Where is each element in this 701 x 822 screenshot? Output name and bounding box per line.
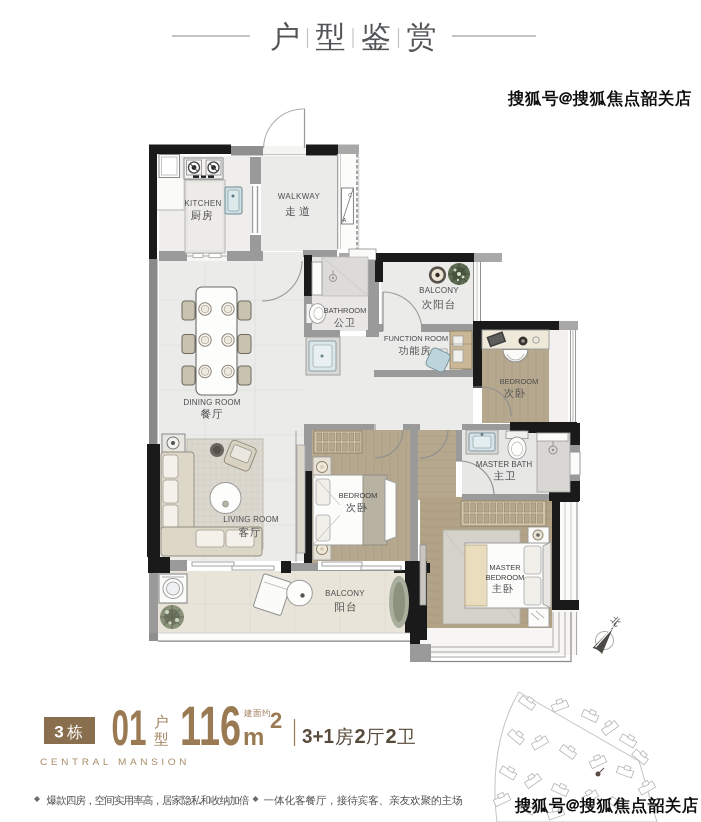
svg-text:BALCONY: BALCONY [325,589,365,598]
svg-text:3+1: 3+1 [302,726,334,748]
svg-text:CENTRAL MANSION: CENTRAL MANSION [40,757,190,767]
svg-text:116: 116 [180,694,241,757]
svg-text:m: m [243,724,264,751]
svg-text:A: A [343,218,347,224]
svg-text:FUNCTION ROOM: FUNCTION ROOM [384,334,448,343]
svg-text:MASTER: MASTER [489,563,521,572]
svg-text:BEDROOM: BEDROOM [500,377,539,386]
svg-text:DINING ROOM: DINING ROOM [183,398,240,407]
svg-text:BATHROOM: BATHROOM [324,306,367,315]
svg-text:LIVING ROOM: LIVING ROOM [223,515,279,524]
svg-text:WALKWAY: WALKWAY [278,192,321,201]
svg-text:MASTER BATH: MASTER BATH [476,460,533,469]
svg-text:BEDROOM: BEDROOM [339,491,378,500]
svg-text:BALCONY: BALCONY [419,286,459,295]
svg-text:BEDROOM: BEDROOM [486,573,525,582]
svg-text:KITCHEN: KITCHEN [184,199,221,208]
svg-text:3: 3 [54,723,63,742]
svg-text:2: 2 [386,726,397,748]
svg-text:2: 2 [355,726,366,748]
svg-text:01: 01 [112,700,147,756]
svg-text:2: 2 [270,708,282,733]
svg-text:C: C [348,193,352,199]
